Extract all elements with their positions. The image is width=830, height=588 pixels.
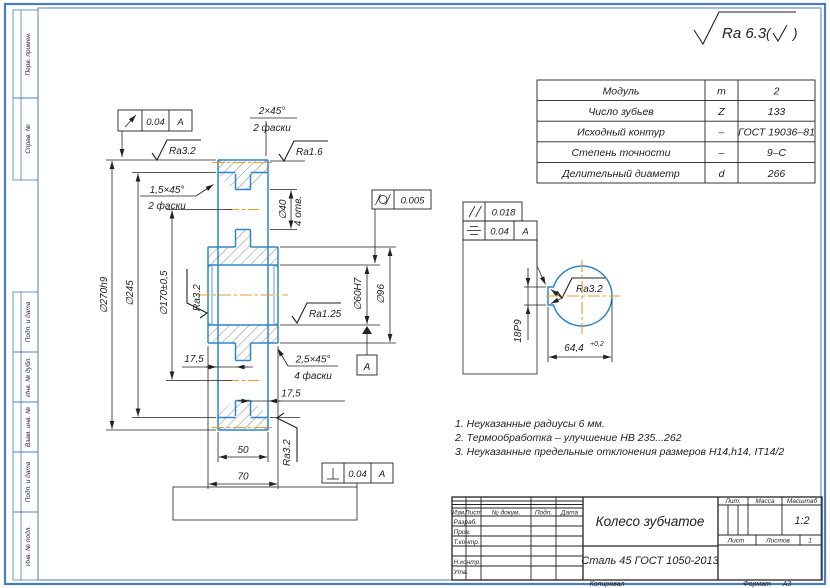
dim-d40: ∅40 — [278, 199, 289, 219]
tb-scale-val: 1:2 — [794, 515, 809, 527]
dim-d60: ∅60H7 — [353, 277, 364, 310]
perpendicularity-frame: 0.04 A — [322, 463, 393, 487]
tb-sheet: Лист — [727, 538, 745, 545]
param-sym: – — [718, 127, 725, 139]
dim-17-5-left: 17,5 — [184, 354, 204, 365]
tolerance-frames: 0.04 A 0.005 0.018 — [118, 110, 546, 487]
dim-keyway-depth-tol: +0,2 — [590, 341, 604, 348]
bracket-close: ) — [791, 26, 798, 41]
param-val: 9–С — [767, 147, 787, 159]
param-sym: Z — [717, 106, 725, 118]
parallelism-frame: 0.018 — [463, 202, 522, 221]
param-sym: m — [717, 86, 726, 98]
perpendicularity-datum-ref: A — [378, 469, 385, 480]
tb-col-list: Лист — [464, 510, 482, 517]
runout-icon — [125, 115, 136, 127]
tb-row-nkontr: Н.контр. — [454, 559, 482, 566]
general-roughness-value: Ra 6.3 — [722, 25, 767, 42]
margin-perv-primen: Перв. примен. — [25, 32, 32, 75]
runout-datum-ref: A — [176, 117, 183, 128]
tb-sheets: Листов — [765, 538, 790, 545]
drawing-sheet: Перв. примен. Справ. № Подп. и дата Инв.… — [0, 0, 830, 588]
tb-col-doc: № докум. — [492, 509, 521, 517]
tb-format-val: А3 — [782, 581, 792, 588]
symmetry-frame: 0.04 A — [463, 221, 546, 374]
margin-vzam-inv: Взам. инв. № — [25, 407, 32, 447]
tb-lit: Лит. — [724, 498, 740, 505]
tb-row-utv: Утв. — [453, 569, 469, 576]
tb-col-izm: Изм. — [452, 510, 466, 517]
cylindricity-frame: 0.005 — [372, 190, 431, 263]
runout-value: 0.04 — [146, 117, 165, 128]
note-1: 1. Неуказанные радиусы 6 мм. — [455, 418, 605, 430]
dim-d170: ∅170±0,5 — [159, 270, 170, 315]
tb-row-tkontr: Т.контр. — [454, 539, 480, 546]
cylindricity-value: 0.005 — [401, 196, 425, 207]
param-val: ГОСТ 19036–81 — [738, 127, 815, 139]
general-roughness: Ra 6.3 ( ) — [694, 12, 798, 44]
symmetry-value: 0.04 — [490, 227, 509, 238]
datum-a-label: A — [363, 362, 371, 373]
bracket-open: ( — [766, 26, 772, 41]
dim-70: 70 — [237, 472, 249, 483]
roughness-ra16: Ra1.6 — [296, 147, 323, 158]
keyway-detail-view: 18P9 64,4 +0,2 — [513, 260, 620, 362]
dim-17-5-right: 17,5 — [281, 389, 301, 400]
tb-col-data: Дата — [560, 510, 579, 517]
chamfer-2-5x45: 2,5×45° — [295, 355, 331, 366]
note-3: 3. Неуказанные предельные отклонения раз… — [455, 446, 784, 458]
symmetry-datum-ref: A — [521, 227, 528, 238]
tb-scale: Масштаб — [787, 497, 818, 505]
tb-sheets-val: 1 — [808, 538, 812, 545]
tb-format: Формат — [743, 581, 771, 588]
margin-sprav: Справ. № — [25, 124, 32, 154]
tb-row-prov: Пров. — [454, 529, 471, 536]
param-val: 266 — [767, 168, 786, 180]
title-block: Изм. Лист № докум. Подп. Дата Разраб. Пр… — [452, 497, 822, 588]
parallelism-icon — [469, 206, 482, 217]
roughness-ra32-keyway: Ra3.2 — [576, 284, 603, 295]
note-2: 2. Термообработка – улучшение НВ 235...2… — [454, 432, 682, 444]
datum-a: A — [357, 326, 377, 375]
dim-d245: ∅245 — [125, 280, 136, 306]
param-val: 2 — [773, 86, 780, 98]
param-name: Делительный диаметр — [561, 168, 680, 180]
chamfer-2-5x45-count: 4 фаски — [294, 370, 332, 382]
param-name: Число зубьев — [588, 106, 654, 118]
chamfer-1-5x45-count: 2 фаски — [147, 200, 186, 212]
symmetry-icon — [467, 227, 481, 235]
param-name: Степень точности — [572, 147, 671, 159]
dim-d40-count: 4 отв. — [293, 196, 304, 226]
margin-podp-data-1: Подп. и дата — [24, 301, 32, 342]
part-material: Сталь 45 ГОСТ 1050-2013 — [581, 555, 719, 567]
param-name: Модуль — [603, 86, 640, 98]
param-val: 133 — [768, 106, 786, 118]
tb-mass: Масса — [755, 498, 775, 505]
cylindricity-icon — [376, 194, 391, 205]
roughness-ra32-top: Ra3.2 — [169, 146, 196, 157]
gear-parameters-table: Модуль m 2 Число зубьев Z 133 Исходный к… — [537, 80, 815, 183]
margin-inv-dubl: Инв. № дубл. — [24, 357, 32, 397]
chamfer-2x45: 2×45° — [258, 106, 286, 117]
dim-d96: ∅96 — [376, 284, 387, 304]
perpendicularity-value: 0.04 — [348, 469, 367, 480]
drawing-canvas: Перв. примен. Справ. № Подп. и дата Инв.… — [0, 0, 830, 588]
dim-50: 50 — [237, 445, 249, 456]
roughness-ra32-bore: Ra3.2 — [192, 284, 203, 311]
margin-podp-data-2: Подп. и дата — [24, 461, 32, 502]
centerlines — [198, 163, 288, 428]
dim-keyway-depth: 64,4 — [564, 343, 584, 354]
tb-col-podp: Подп. — [535, 509, 552, 517]
gear-section-view — [198, 160, 288, 430]
perpendicularity-icon — [327, 468, 339, 479]
chamfer-1-5x45: 1,5×45° — [150, 185, 185, 196]
tb-copied: Копировал — [590, 581, 625, 588]
tb-row-razrab: Разраб. — [454, 518, 478, 526]
param-sym: – — [718, 147, 725, 159]
roughness-ra125: Ra1.25 — [309, 309, 342, 320]
technical-notes: 1. Неуказанные радиусы 6 мм. 2. Термообр… — [454, 418, 784, 458]
roughness-ra32-bottom: Ra3.2 — [282, 439, 293, 466]
part-title: Колесо зубчатое — [596, 514, 705, 529]
dim-d270: ∅270h9 — [99, 276, 110, 313]
param-name: Исходный контур — [577, 127, 665, 139]
auxiliary-outline — [173, 487, 357, 520]
dim-keyway-width: 18P9 — [513, 319, 524, 343]
parallelism-value: 0.018 — [492, 208, 516, 219]
chamfer-2x45-count: 2 фаски — [252, 122, 291, 134]
margin-inv-podl: Инв. № подл. — [24, 526, 32, 567]
param-sym: d — [719, 168, 726, 180]
margin-labels: Перв. примен. Справ. № Подп. и дата Инв.… — [24, 32, 32, 566]
